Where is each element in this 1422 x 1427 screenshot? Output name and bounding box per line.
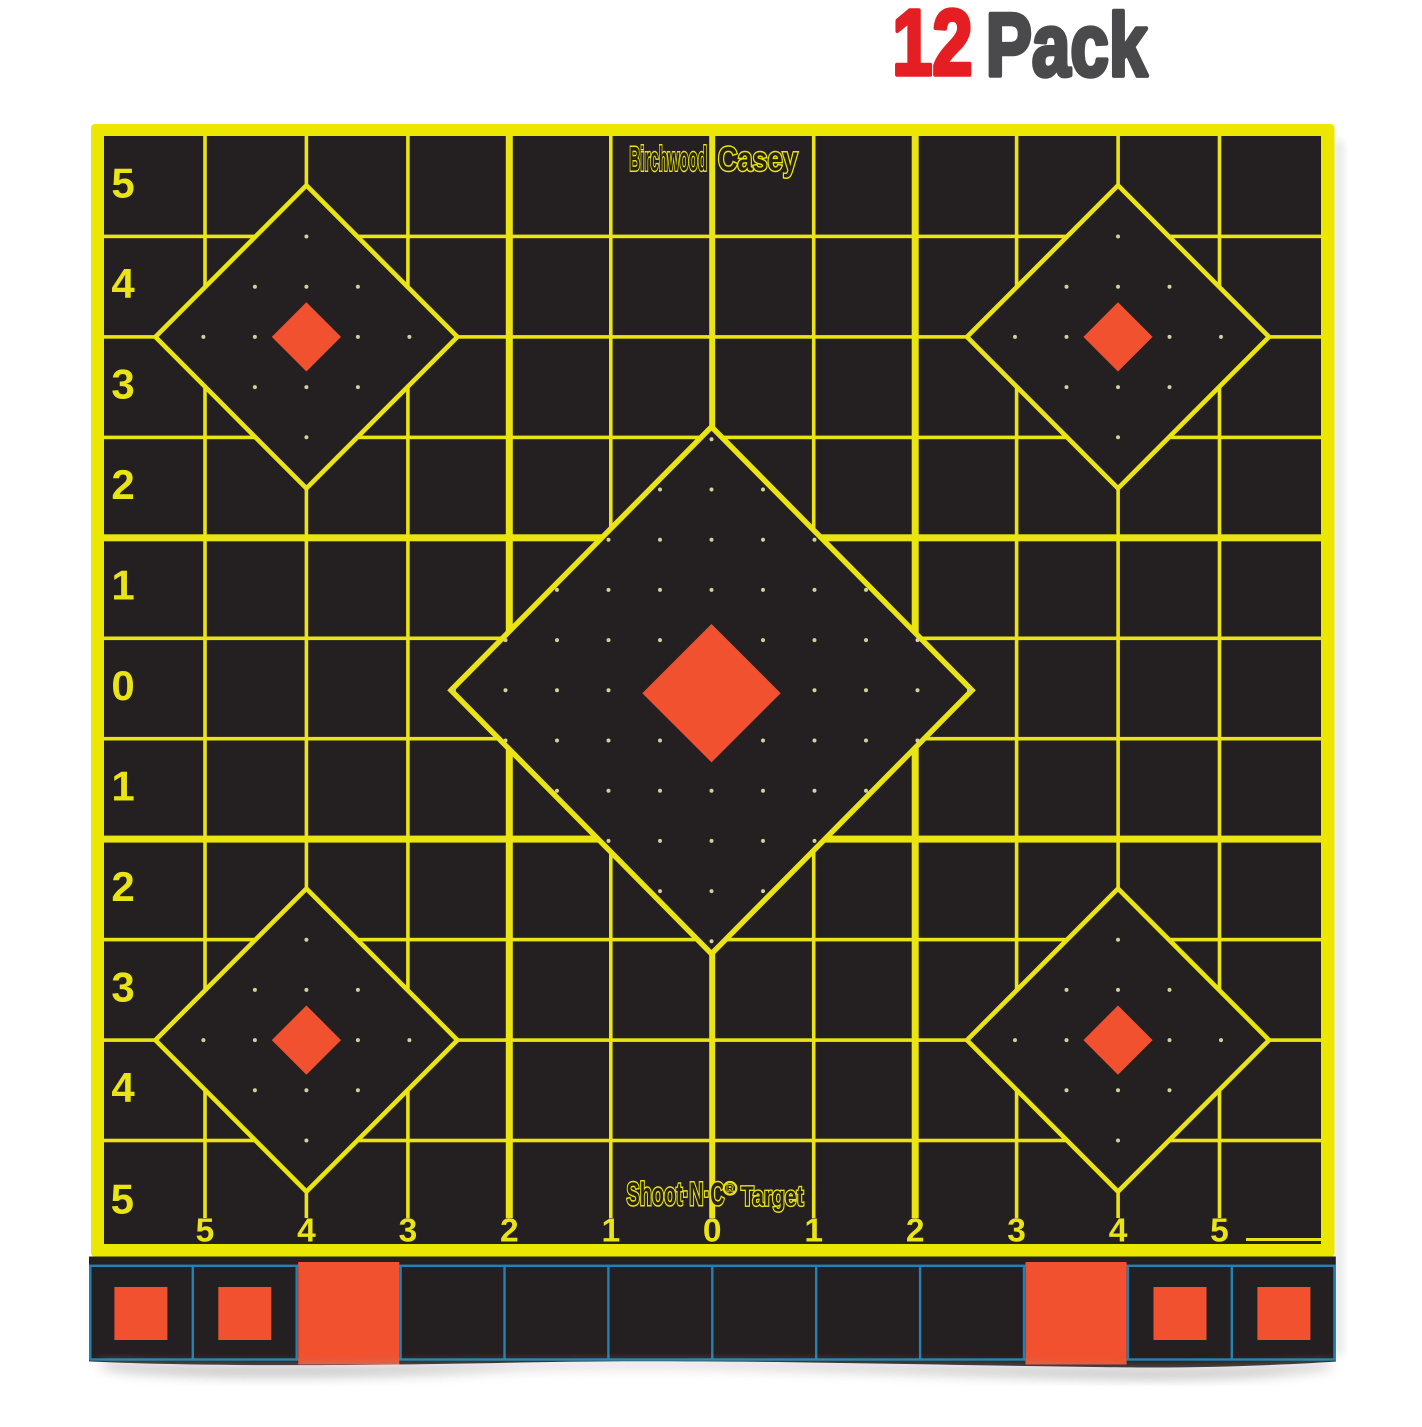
svg-text:4: 4 bbox=[1109, 1212, 1128, 1249]
svg-text:Birchwood: Birchwood bbox=[629, 139, 707, 178]
svg-text:1: 1 bbox=[111, 762, 134, 809]
svg-text:Target: Target bbox=[741, 1182, 804, 1213]
svg-text:0: 0 bbox=[703, 1212, 722, 1249]
svg-text:2: 2 bbox=[111, 461, 134, 508]
svg-text:5: 5 bbox=[111, 1176, 134, 1223]
svg-text:5: 5 bbox=[111, 160, 134, 207]
svg-text:3: 3 bbox=[111, 963, 134, 1010]
svg-text:1: 1 bbox=[111, 562, 134, 609]
svg-text:4: 4 bbox=[111, 1064, 135, 1111]
svg-text:3: 3 bbox=[111, 361, 134, 408]
svg-text:Pack: Pack bbox=[986, 0, 1148, 94]
svg-text:Casey: Casey bbox=[718, 140, 798, 179]
svg-text:R: R bbox=[727, 1184, 734, 1194]
svg-text:Shoot·N·C: Shoot·N·C bbox=[626, 1176, 724, 1212]
svg-text:2: 2 bbox=[111, 863, 134, 910]
svg-text:2: 2 bbox=[906, 1212, 925, 1249]
svg-text:1: 1 bbox=[804, 1212, 823, 1249]
svg-text:3: 3 bbox=[399, 1212, 418, 1249]
svg-text:4: 4 bbox=[297, 1212, 316, 1249]
svg-text:2: 2 bbox=[500, 1212, 519, 1249]
svg-text:4: 4 bbox=[111, 260, 135, 307]
svg-text:12: 12 bbox=[892, 0, 972, 94]
svg-text:5: 5 bbox=[1210, 1212, 1229, 1249]
svg-text:1: 1 bbox=[601, 1212, 620, 1249]
svg-text:0: 0 bbox=[111, 662, 134, 709]
svg-text:5: 5 bbox=[196, 1212, 215, 1249]
svg-text:3: 3 bbox=[1007, 1212, 1026, 1249]
